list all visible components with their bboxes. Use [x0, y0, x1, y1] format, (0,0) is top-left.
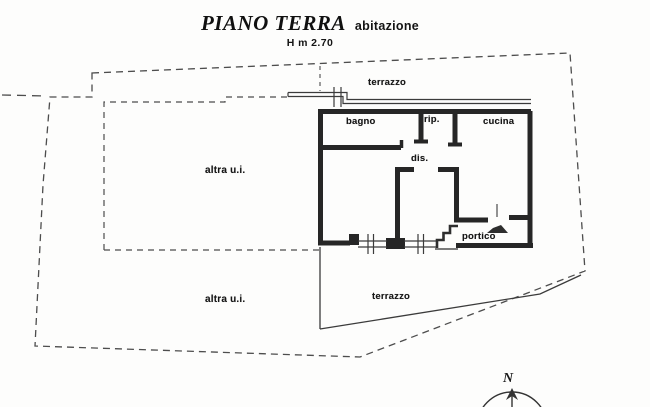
floor-plan-drawing [0, 0, 650, 407]
portico-door-symbol [487, 204, 508, 233]
room-label-rip: rip. [424, 114, 440, 125]
portico-steps [435, 226, 458, 249]
title-line: PIANO TERRA abitazione [160, 11, 460, 36]
room-label-altra-ui-lower: altra u.i. [205, 294, 245, 305]
room-label-altra-ui-upper: altra u.i. [205, 165, 245, 176]
room-label-dis: dis. [411, 153, 428, 164]
floor-plan-canvas: PIANO TERRA abitazione H m 2.70 terrazzo… [0, 0, 650, 407]
plan-height-note: H m 2.70 [160, 37, 460, 49]
lower-terrace-edge [320, 247, 581, 329]
room-label-bagno: bagno [346, 116, 376, 127]
compass-north-label: N [503, 371, 513, 387]
interior-partitions [321, 114, 528, 240]
plan-title: PIANO TERRA [201, 11, 346, 36]
room-label-portico: portico [462, 231, 496, 242]
terrace-parapet [288, 93, 531, 104]
room-label-cucina: cucina [483, 116, 514, 127]
building-walls [318, 109, 533, 246]
plan-subtitle: abitazione [355, 19, 419, 33]
room-label-terrazzo-lower: terrazzo [372, 291, 410, 302]
title-block: PIANO TERRA abitazione H m 2.70 [160, 11, 460, 49]
compass-rose [477, 388, 547, 407]
room-label-terrazzo-top: terrazzo [368, 77, 406, 88]
